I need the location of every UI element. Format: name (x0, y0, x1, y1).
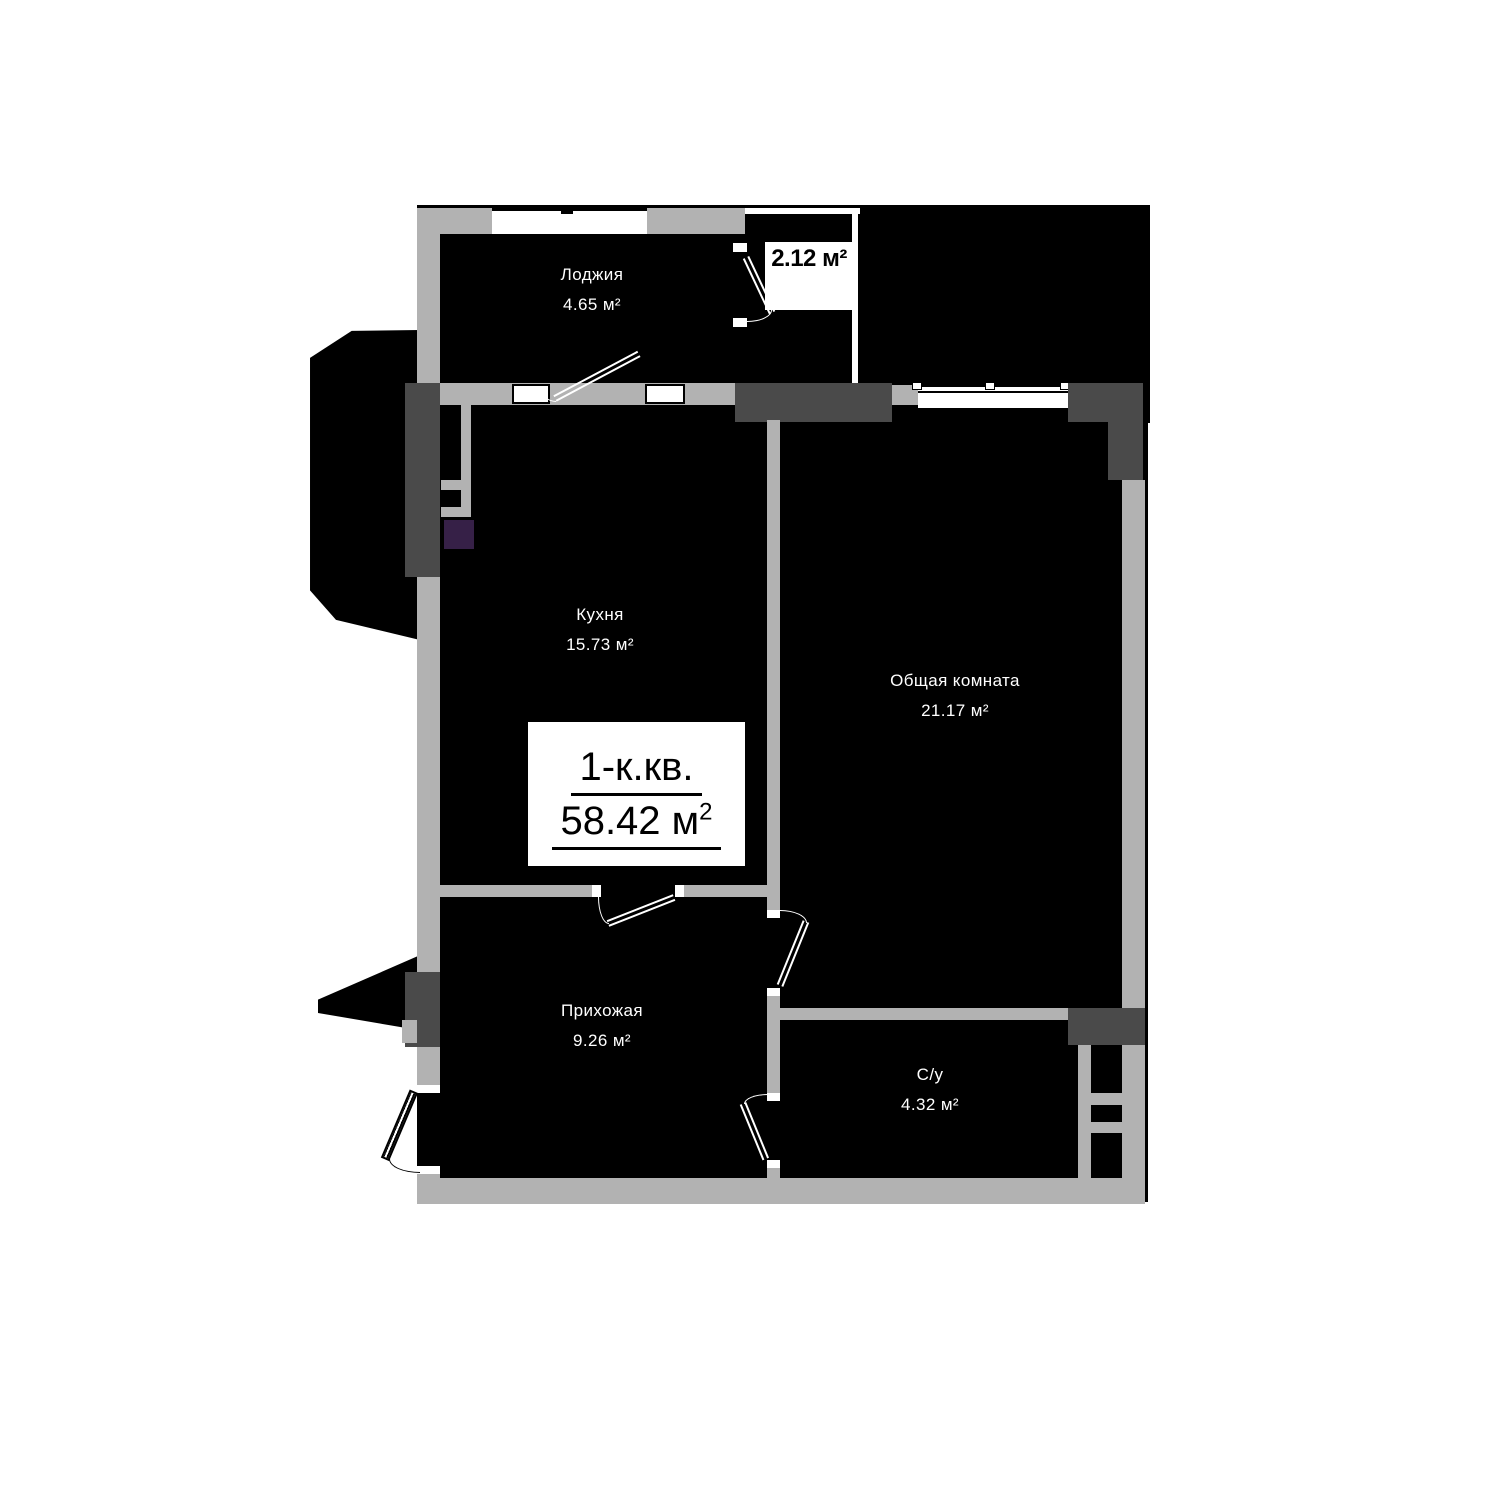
loggia-left-wall (417, 208, 440, 385)
living-room-name: Общая комната (845, 666, 1065, 696)
kitchen-label: Кухня 15.73 м² (500, 600, 700, 660)
hallway-name: Прихожая (502, 996, 702, 1026)
living-door-jamb-top (767, 910, 780, 918)
bathroom-shaft-rung1 (1078, 1093, 1145, 1105)
bath-door-jamb-bottom (767, 1160, 780, 1168)
kitchen-living-divider (767, 420, 780, 885)
storage-door-jamb-top (733, 243, 747, 252)
hall-left-wall-mid (417, 1047, 440, 1085)
entrance-door-arc (389, 1159, 420, 1173)
storage-door-jamb-bottom (733, 318, 747, 327)
hall-left-wall-upper (417, 885, 440, 972)
entrance-jamb-bottom (417, 1166, 440, 1174)
storage-outline-top (745, 208, 860, 214)
hall-top-wall-right (684, 885, 767, 897)
plan-body-lower (417, 423, 1143, 1202)
unit-type-line: 1-к.кв. (571, 747, 701, 787)
shaft-rung-upper (441, 480, 471, 490)
kitchen-area: 15.73 м² (500, 630, 700, 660)
living-top-dark-wall-right (1068, 383, 1143, 422)
total-area-line: 58.42 м2 (552, 801, 720, 841)
living-room-area: 21.17 м² (845, 696, 1065, 726)
hall-left-wall-lower (417, 1174, 440, 1204)
kitchen-name: Кухня (500, 600, 700, 630)
hall-top-wall-left (440, 885, 592, 897)
shaft-rung-lower (441, 507, 471, 517)
hall-divider-seg2 (767, 996, 780, 1093)
hallway-label: Прихожая 9.26 м² (502, 996, 702, 1056)
loggia-label: Лоджия 4.65 м² (492, 260, 692, 320)
unit-type: 1-к.кв. (571, 745, 701, 796)
loggia-top-wall-right (647, 208, 745, 234)
hall-left-stub (402, 1020, 417, 1043)
living-top-dark-wall-left (735, 383, 892, 422)
loggia-area: 4.65 м² (492, 290, 692, 320)
living-window-tick-mid (985, 382, 995, 390)
left-wedge-silhouette (318, 956, 418, 1030)
loggia-name: Лоджия (492, 260, 692, 290)
storage-room: 2.12 м² (765, 242, 853, 310)
left-bay-silhouette (308, 330, 420, 640)
living-window-tick-left (912, 382, 922, 390)
bathroom-label: С/у 4.32 м² (830, 1060, 1030, 1120)
kitchen-left-wall (417, 577, 440, 885)
living-room-label: Общая комната 21.17 м² (845, 666, 1065, 726)
info-box: 1-к.кв. 58.42 м2 (528, 722, 745, 866)
shaft-vertical (461, 405, 471, 517)
living-right-wall (1122, 480, 1145, 1008)
living-window-innerline (918, 391, 1068, 393)
entrance-door-leaf (381, 1089, 418, 1161)
bathroom-dark-pier (1068, 1008, 1145, 1045)
storage-area: 2.12 м² (771, 245, 847, 272)
bathroom-area: 4.32 м² (830, 1090, 1030, 1120)
total-area-sup: 2 (699, 799, 712, 826)
total-area: 58.42 м2 (552, 799, 720, 850)
living-door-jamb-bottom (767, 988, 780, 996)
kitchen-window-right (645, 384, 685, 404)
bath-door-jamb-top (767, 1093, 780, 1101)
hall-divider-seg1 (767, 885, 780, 910)
loggia-window-tick (561, 209, 573, 214)
living-right-dark-L (1108, 422, 1143, 480)
floor-plan: Лоджия 4.65 м² Кухня 15.73 м² Общая комн… (0, 0, 1500, 1500)
entrance-jamb-top (417, 1085, 440, 1093)
hall-kitchen-door-jamb-right (675, 885, 684, 897)
bottom-wall (417, 1178, 1145, 1204)
riser-marker (444, 520, 474, 549)
hallway-area: 9.26 м² (502, 1026, 702, 1056)
bathroom-top-wall (780, 1008, 1068, 1020)
hall-kitchen-door-jamb-left (592, 885, 601, 897)
bathroom-shaft-rung2 (1078, 1122, 1145, 1133)
loggia-kitchen-wall (440, 383, 743, 405)
kitchen-left-dark-pier (405, 383, 440, 577)
bathroom-name: С/у (830, 1060, 1030, 1090)
